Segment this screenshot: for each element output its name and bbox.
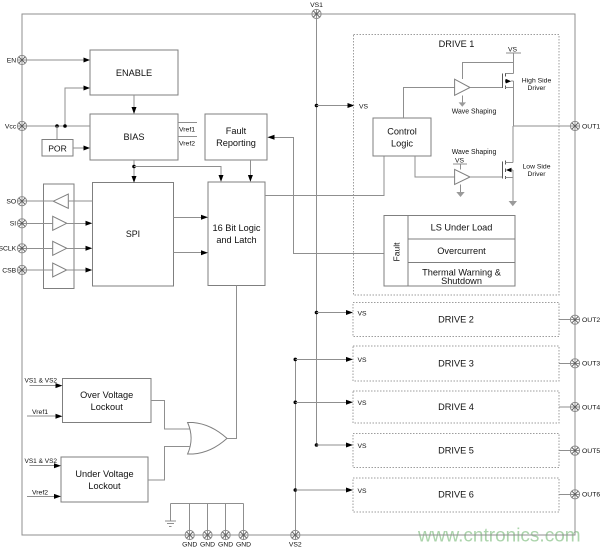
svg-text:OUT3: OUT3: [582, 361, 600, 368]
svg-text:Low Side: Low Side: [523, 164, 551, 171]
svg-text:DRIVE 4: DRIVE 4: [438, 402, 474, 412]
svg-text:BIAS: BIAS: [124, 132, 145, 142]
svg-text:EN: EN: [7, 57, 17, 64]
svg-text:POR: POR: [48, 144, 67, 154]
svg-text:Driver: Driver: [527, 171, 546, 178]
svg-text:Driver: Driver: [527, 85, 546, 92]
svg-text:Vref1: Vref1: [32, 409, 48, 416]
svg-text:SI: SI: [10, 221, 17, 228]
svg-text:and Latch: and Latch: [216, 235, 256, 245]
svg-text:VS: VS: [359, 103, 369, 110]
svg-text:Fault: Fault: [392, 242, 402, 262]
svg-text:Wave Shaping: Wave Shaping: [452, 108, 497, 115]
svg-text:VS: VS: [358, 310, 368, 317]
svg-text:Control: Control: [387, 127, 417, 137]
svg-text:Over Voltage: Over Voltage: [80, 390, 133, 400]
svg-text:Reporting: Reporting: [216, 138, 256, 148]
svg-text:DRIVE 5: DRIVE 5: [438, 446, 474, 456]
svg-text:DRIVE 1: DRIVE 1: [439, 39, 475, 49]
svg-text:VS: VS: [358, 357, 368, 364]
svg-text:OUT5: OUT5: [582, 448, 600, 455]
svg-text:VS1 & VS2: VS1 & VS2: [25, 458, 58, 465]
svg-text:SCLK: SCLK: [0, 246, 17, 253]
svg-text:GND: GND: [218, 542, 233, 549]
svg-text:Fault: Fault: [226, 126, 247, 136]
svg-text:SPI: SPI: [126, 229, 140, 239]
svg-text:Vref2: Vref2: [32, 489, 48, 496]
svg-text:Vref2: Vref2: [179, 141, 195, 148]
svg-text:OUT6: OUT6: [582, 492, 600, 499]
svg-text:LS Under Load: LS Under Load: [431, 223, 493, 233]
svg-text:DRIVE 3: DRIVE 3: [438, 358, 474, 368]
svg-text:Under Voltage: Under Voltage: [75, 469, 133, 479]
svg-text:OUT1: OUT1: [582, 123, 600, 130]
svg-text:16 Bit Logic: 16 Bit Logic: [212, 223, 260, 233]
svg-text:Vref1: Vref1: [179, 127, 195, 134]
svg-text:VS1: VS1: [310, 2, 323, 9]
svg-text:ENABLE: ENABLE: [116, 68, 152, 78]
svg-text:DRIVE 6: DRIVE 6: [438, 489, 474, 499]
svg-text:OUT2: OUT2: [582, 317, 600, 324]
svg-text:OUT4: OUT4: [582, 404, 600, 411]
svg-text:DRIVE 2: DRIVE 2: [438, 315, 474, 325]
svg-text:Logic: Logic: [391, 139, 413, 149]
svg-text:GND: GND: [236, 542, 251, 549]
svg-text:VS: VS: [508, 47, 518, 54]
svg-text:SO: SO: [6, 199, 16, 206]
svg-text:VS1 & VS2: VS1 & VS2: [25, 378, 58, 385]
svg-text:www.cntronics.com: www.cntronics.com: [417, 526, 581, 547]
svg-text:GND: GND: [182, 542, 197, 549]
svg-text:Overcurrent: Overcurrent: [437, 246, 486, 256]
svg-text:High Side: High Side: [522, 78, 552, 85]
svg-text:Wave Shaping: Wave Shaping: [452, 149, 497, 156]
svg-text:VS: VS: [358, 400, 368, 407]
svg-text:VS: VS: [358, 443, 368, 450]
svg-text:Lockout: Lockout: [91, 402, 124, 412]
svg-text:Shutdown: Shutdown: [441, 276, 482, 286]
svg-text:CSB: CSB: [2, 267, 16, 274]
svg-text:VS: VS: [358, 488, 368, 495]
svg-text:GND: GND: [200, 542, 215, 549]
svg-text:Lockout: Lockout: [88, 481, 121, 491]
svg-text:Vcc: Vcc: [5, 123, 17, 130]
svg-text:VS2: VS2: [289, 542, 302, 549]
